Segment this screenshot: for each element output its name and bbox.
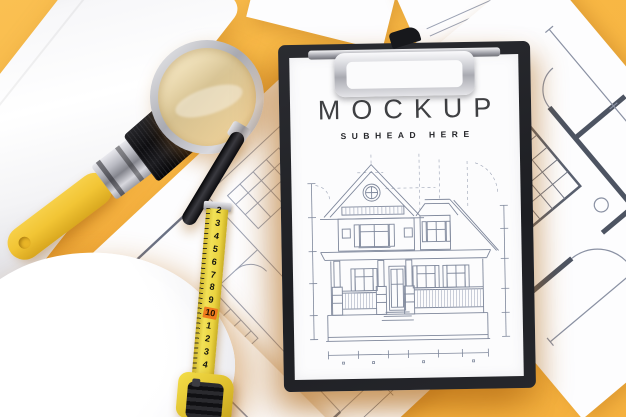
house-elevation-drawing: [299, 150, 516, 369]
tape-grip-detail: [192, 378, 201, 387]
clipboard: MOCKUP SUBHEAD HERE: [278, 41, 536, 392]
paint-brush-hang-hole: [16, 234, 33, 251]
clipboard-sheet: MOCKUP SUBHEAD HERE: [289, 54, 524, 380]
flatlay-photo: MOCKUP SUBHEAD HERE: [0, 0, 626, 417]
mockup-subhead: SUBHEAD HERE: [291, 128, 520, 142]
clipboard-clip-cutout: [346, 60, 462, 89]
tape-grip: [185, 381, 224, 417]
mockup-title: MOCKUP: [290, 92, 520, 127]
clipboard-clip: [334, 51, 475, 97]
tape-body: [175, 371, 235, 417]
lens-glint: [172, 78, 247, 124]
